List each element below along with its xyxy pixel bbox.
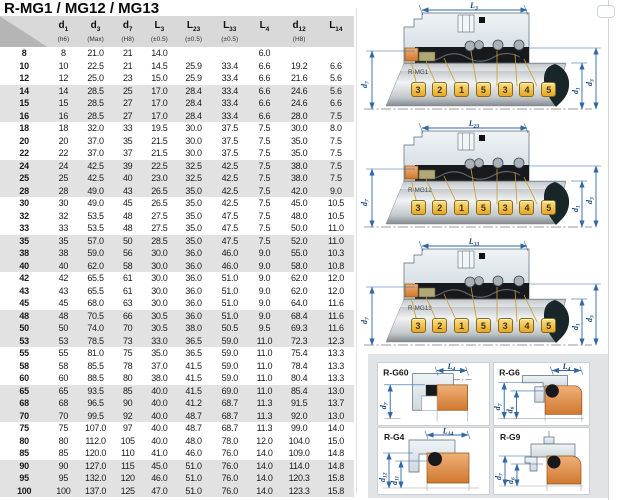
table-row: 656593.58540.041.569.011.085.413.0	[0, 385, 354, 398]
spring-icon	[514, 276, 524, 286]
set-screw-port	[458, 15, 474, 32]
column-header-d7: d7(H8)	[113, 16, 143, 47]
dimension-label-d12: d12	[378, 472, 388, 482]
dimension-label-d7: d7	[360, 81, 371, 88]
seal-diagram-r-mg1: R-MG1 L3 d7 d1 d3 3215345	[358, 2, 608, 118]
page-right-border	[608, 0, 609, 500]
callout-box: 5	[541, 82, 556, 97]
callout-box: 5	[476, 318, 491, 333]
table-row: 8080112.010540.048.078.012.0104.015.0	[0, 435, 354, 448]
table-row: 484870.56630.536.051.09.068.411.6	[0, 310, 354, 323]
table-row: 404062.05830.036.046.09.058.010.8	[0, 260, 354, 273]
seat-ring	[405, 166, 418, 179]
spring-icon	[475, 159, 484, 168]
seat-ring	[405, 48, 418, 61]
o-ring	[426, 385, 437, 396]
dimension-label-d6: d6	[506, 477, 516, 484]
table-header-row: d1(h6) d3(Max) d7(H8) L3(±0.5) L23(±0.5)…	[0, 16, 354, 47]
table-row: 303049.04526.535.042.57.545.010.5	[0, 197, 354, 210]
seat-diagram-r-g60: R-G60 L4 d7	[377, 362, 490, 426]
table-row: 707099.59240.048.768.711.392.013.0	[0, 410, 354, 423]
callout-box: 3	[498, 200, 513, 215]
dimension-label-L4: L4	[562, 363, 571, 372]
table-row: 242442.53922.532.542.57.538.07.5	[0, 160, 354, 173]
table-row: 151528.52717.028.433.46.624.66.6	[0, 97, 354, 110]
callout-box: 2	[432, 82, 447, 97]
dimension-label-d3: d3	[585, 315, 596, 322]
dimension-label-d1: d1	[571, 323, 582, 330]
drive-pin	[479, 253, 485, 259]
table-row: 535378.57333.036.559.011.072.312.3	[0, 335, 354, 348]
set-screw-port	[458, 133, 474, 150]
face-ring	[419, 288, 435, 297]
table-row: 434365.56130.036.051.09.062.012.0	[0, 285, 354, 298]
spring-icon	[493, 158, 503, 168]
table-row: 353557.05028.535.047.57.552.011.0	[0, 235, 354, 248]
spring-icon	[475, 277, 484, 286]
spring-icon	[465, 159, 475, 169]
seat-label: R-G4	[384, 432, 405, 442]
callout-box: 1	[454, 200, 469, 215]
gland-part	[523, 376, 568, 387]
table-row: 585885.57837.041.559.011.078.413.3	[0, 360, 354, 373]
dimension-table: d1(h6) d3(Max) d7(H8) L3(±0.5) L23(±0.5)…	[0, 16, 354, 497]
callout-box: 4	[519, 318, 534, 333]
seat-label: R-G6	[499, 368, 520, 378]
callout-box: 2	[432, 318, 447, 333]
table-row: 323253.54827.535.047.57.548.010.5	[0, 210, 354, 223]
spring-icon	[493, 40, 503, 50]
callout-row: 3215345	[411, 200, 557, 215]
table-row: 121225.02315.025.933.46.621.65.6	[0, 72, 354, 85]
set-screw-port	[458, 251, 474, 268]
face-ring	[419, 170, 435, 179]
face-ring	[419, 52, 435, 61]
callout-box: 4	[519, 200, 534, 215]
table-row: 222237.03721.530.037.57.535.07.5	[0, 147, 354, 160]
callout-box: 3	[411, 318, 426, 333]
drive-pin	[479, 17, 485, 23]
callout-box: 5	[476, 82, 491, 97]
column-header-L33: L33(±0.5)	[211, 16, 248, 47]
callout-box: 2	[432, 200, 447, 215]
dimension-label-d3: d3	[585, 197, 596, 204]
table-row: 383859.05630.036.046.09.055.010.3	[0, 247, 354, 260]
callout-box: 5	[541, 318, 556, 333]
o-ring	[428, 452, 442, 466]
seal-diagram-r-mg13: R-MG13 L33 d7 d1 d3 3215345	[358, 238, 608, 354]
table-body: 8821.02114.06.0101022.52114.525.933.46.6…	[0, 47, 354, 497]
column-header-L3: L3(±0.5)	[143, 16, 176, 47]
o-ring	[548, 456, 561, 469]
dimension-label-d7: d7	[360, 317, 371, 324]
column-header-L4: L4	[248, 16, 280, 47]
column-header-d1: d1(h6)	[48, 16, 78, 47]
table-row: 8821.02114.06.0	[0, 47, 354, 60]
o-ring	[546, 384, 559, 397]
seat-label: R-G60	[383, 368, 409, 378]
seat-label: R-G9	[500, 432, 521, 442]
callout-box: 1	[454, 318, 469, 333]
dimension-label-d11: d11	[390, 476, 400, 485]
table-row: 282849.04326.535.042.57.542.09.0	[0, 185, 354, 198]
clamp-part	[544, 437, 554, 444]
table-row: 454568.06330.036.051.09.064.011.6	[0, 297, 354, 310]
spring-icon	[514, 158, 524, 168]
gland-part	[531, 444, 575, 457]
table-corner-cell	[0, 16, 48, 47]
table-diagram-divider	[356, 8, 357, 494]
seat-part	[437, 385, 468, 410]
table-row: 9595132.012046.051.076.014.0120.315.8	[0, 472, 354, 485]
callout-box: 3	[498, 82, 513, 97]
table-row: 100100137.012547.051.076.014.0123.315.8	[0, 485, 354, 498]
callout-box: 1	[454, 82, 469, 97]
page-title: R-MG1 / MG12 / MG13	[4, 0, 159, 17]
dimension-label-d1: d1	[571, 205, 582, 212]
spring-icon	[493, 276, 503, 286]
seat-diagram-r-g4: R-G4 L14 d12 d11	[377, 427, 490, 495]
spring-icon	[514, 40, 524, 50]
seat-detail-grid: R-G60 L4 d7 R-G6	[368, 354, 608, 498]
corner-notch	[597, 5, 615, 18]
table-row: 161628.52717.028.433.46.628.07.5	[0, 110, 354, 123]
callout-box: 3	[411, 200, 426, 215]
table-row: 202037.03521.530.037.57.535.07.5	[0, 135, 354, 148]
diagram-label: R-MG12	[408, 187, 432, 194]
table-row: 8585120.011041.046.076.014.0109.014.8	[0, 447, 354, 460]
seat-diagram-r-g6: R-G6 L4 d7 d6	[493, 362, 590, 426]
seal-diagram-r-mg12: R-MG12 L23 d7 d1 d3 3215345	[358, 120, 608, 236]
seat-diagram-r-g9: R-G9 d7 d6	[493, 427, 590, 495]
drive-pin	[479, 135, 485, 141]
callout-box: 4	[519, 82, 534, 97]
dimension-label-L14: L14	[442, 428, 454, 437]
diagram-label: R-MG13	[408, 305, 432, 312]
spring-icon	[475, 41, 484, 50]
callout-box: 3	[411, 82, 426, 97]
table-row: 141428.52517.028.433.46.624.65.6	[0, 85, 354, 98]
callout-row: 3215345	[411, 318, 557, 333]
dimension-label-L4: L4	[446, 363, 455, 372]
spring-icon	[465, 41, 475, 51]
dimension-label-d7: d7	[360, 199, 371, 206]
table-row: 606088.58038.041.559.011.080.413.3	[0, 372, 354, 385]
column-header-d12: d12(H8)	[281, 16, 318, 47]
dimension-label-d6: d6	[505, 406, 515, 413]
table-row: 424265.56130.036.051.09.062.012.0	[0, 272, 354, 285]
column-header-d3: d3(Max)	[78, 16, 112, 47]
table-row: 181832.03319.530.037.57.530.08.0	[0, 122, 354, 135]
dimension-label-d3: d3	[585, 79, 596, 86]
table-row: 555581.07535.036.559.011.075.413.3	[0, 347, 354, 360]
seat-ring	[405, 284, 418, 297]
table-row: 505074.07030.538.050.59.569.311.6	[0, 322, 354, 335]
catalog-page: R-MG1 / MG12 / MG13 d1(h6) d3(Max) d7(H8…	[0, 0, 617, 500]
dimension-label-d7: d7	[494, 403, 504, 410]
spring-icon	[465, 277, 475, 287]
callout-box: 5	[476, 200, 491, 215]
table-row: 9090127.011545.051.076.014.0114.014.8	[0, 460, 354, 473]
column-header-L14: L14	[318, 16, 354, 47]
dimension-label-d1: d1	[571, 87, 582, 94]
table-row: 686896.59040.041.268.711.391.513.7	[0, 397, 354, 410]
callout-box: 3	[498, 318, 513, 333]
dimension-label-d7: d7	[379, 402, 389, 409]
dimension-label-d7: d7	[494, 473, 504, 480]
table-row: 7575107.09740.048.768.711.399.014.0	[0, 422, 354, 435]
table-row: 252542.54023.032.542.57.538.07.5	[0, 172, 354, 185]
diagram-label: R-MG1	[408, 69, 429, 76]
callout-row: 3215345	[411, 82, 557, 97]
callout-box: 5	[541, 200, 556, 215]
column-header-L23: L23(±0.5)	[176, 16, 211, 47]
table-row: 333353.54827.535.047.57.550.011.0	[0, 222, 354, 235]
table-row: 101022.52114.525.933.46.619.26.6	[0, 60, 354, 73]
